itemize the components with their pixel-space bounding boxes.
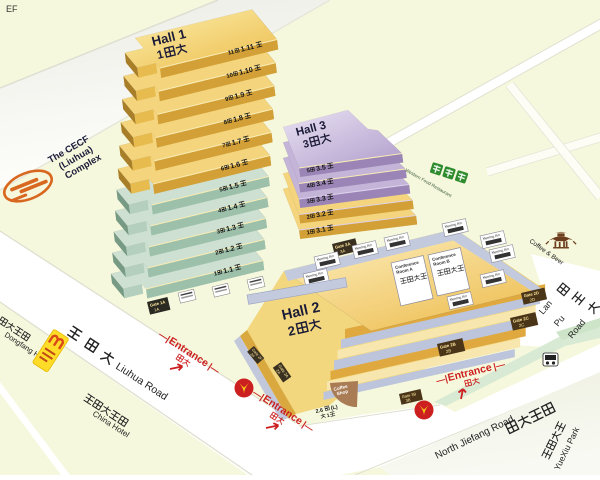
svg-text:EF: EF [6, 4, 18, 14]
